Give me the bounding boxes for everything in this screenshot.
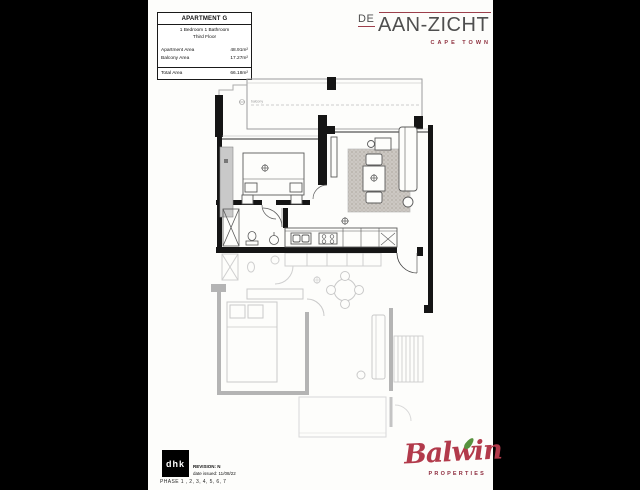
apartment-title: APARTMENT G [158, 13, 251, 25]
development-logo: DE AAN-ZICHT CAPE TOWN [358, 9, 492, 51]
ghost-floor-plan [211, 253, 423, 437]
logo-name: AAN-ZICHT [378, 14, 489, 37]
plan-sheet: APARTMENT G 1 Bedroom 1 Bathroom Third F… [148, 0, 493, 490]
apartment-subtitle: 1 Bedroom 1 Bathroom Third Floor [158, 25, 251, 46]
area-value: 48.91m² [230, 47, 248, 55]
logo-rule [379, 12, 491, 13]
architect-logo: dhk [162, 450, 189, 477]
table-row: Apartment Area 48.91m² [161, 47, 248, 55]
architect-logo-text: dhk [166, 459, 185, 469]
date-issued-text: date issued: 11/08/22 [193, 471, 236, 478]
ghost-lower-balcony [299, 397, 411, 437]
area-label: Balcony Area [161, 55, 189, 63]
total-label: Total Area [161, 71, 182, 76]
stairs [394, 336, 423, 382]
bedroom [242, 153, 304, 219]
logo-city: CAPE TOWN [430, 40, 491, 46]
area-value: 17.27m² [230, 55, 248, 63]
apartment-floor: Third Floor [158, 34, 251, 41]
developer-subtitle: PROPERTIES [429, 471, 486, 477]
area-rows: Apartment Area 48.91m² Balcony Area 17.2… [158, 46, 251, 67]
entrance-door [397, 253, 417, 273]
developer-logo: Balwin PROPERTIES [400, 437, 492, 487]
phase-note: PHASE 1 , 2, 3, 4, 5, 6, 7 [160, 479, 226, 485]
apartment-rooms: 1 Bedroom 1 Bathroom [158, 27, 251, 34]
logo-prefix: DE [358, 13, 375, 27]
kitchen [285, 217, 397, 247]
area-label: Apartment Area [161, 47, 194, 55]
table-row: Balcony Area 17.27m² [161, 55, 248, 63]
revision-block: REVISION: N date issued: 11/08/22 [193, 464, 236, 477]
living-room [313, 127, 417, 212]
floor-plan-drawing: balcony [195, 75, 445, 447]
service-shaft [220, 147, 233, 217]
balcony-label: balcony [251, 100, 263, 104]
apartment-info-table: APARTMENT G 1 Bedroom 1 Bathroom Third F… [157, 12, 252, 80]
developer-name: Balwin [403, 434, 502, 470]
